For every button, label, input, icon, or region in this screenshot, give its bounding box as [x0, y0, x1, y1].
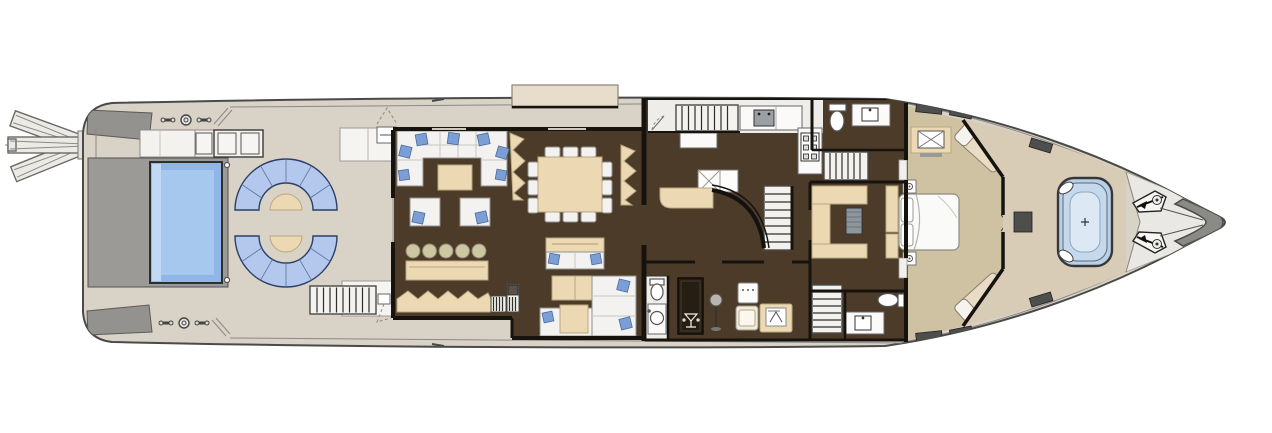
aft-pool-step — [152, 164, 161, 281]
sofa-pillow — [495, 169, 507, 181]
dining-chair — [545, 147, 560, 157]
island-dresser — [846, 208, 862, 234]
corner-counter — [660, 188, 713, 208]
yacht-deck-plan — [0, 0, 1272, 433]
pool-fitting-bottom — [225, 278, 230, 283]
sofa-pillow — [542, 311, 554, 323]
cleat-icon — [195, 321, 209, 325]
sofa-pillow — [398, 169, 409, 180]
dining-chair — [581, 212, 596, 222]
deck-plan-canvas — [0, 0, 1272, 433]
dining-chair — [602, 198, 612, 213]
sofa-pillow — [548, 253, 560, 265]
toilet-icon — [830, 111, 844, 131]
media-coffee-table — [552, 276, 575, 300]
wardrobe-column — [886, 234, 898, 258]
aft-pool-water — [158, 170, 214, 275]
stairs-forward-port — [824, 152, 868, 180]
wardrobe-column — [886, 186, 898, 232]
dining-chair — [528, 198, 538, 213]
toilet-tank — [829, 104, 846, 111]
cleat-icon — [161, 118, 175, 122]
coffee-table — [438, 165, 472, 190]
bar-counter — [406, 261, 488, 280]
dining-area — [528, 147, 612, 222]
bar-stool — [456, 244, 470, 258]
wall-panel — [738, 283, 758, 303]
day-head — [646, 276, 668, 340]
bow-jacuzzi — [1057, 178, 1112, 266]
dining-chair — [563, 212, 578, 222]
deck-hatch — [1014, 212, 1032, 232]
winch-icon — [179, 318, 189, 328]
dining-chair — [528, 180, 538, 195]
sofa-pillow — [619, 317, 632, 330]
sofa-pillow — [415, 133, 428, 146]
cleat-icon — [197, 118, 211, 122]
wardrobe-counter — [812, 204, 830, 244]
dining-chair — [581, 147, 596, 157]
closet-sliver — [899, 258, 907, 278]
sofa-pillow — [447, 132, 459, 144]
bar-stool — [423, 244, 437, 258]
faucet-icon — [862, 317, 865, 320]
tv-cabinet — [911, 127, 951, 157]
cooktop-icon — [801, 133, 819, 161]
dining-chair — [602, 180, 612, 195]
wardrobe-counter — [812, 244, 867, 258]
desk-chair — [736, 306, 758, 330]
faucet-icon — [869, 109, 872, 112]
writing-desk — [760, 304, 792, 332]
ottoman — [560, 305, 588, 333]
bar-stool — [406, 244, 420, 258]
faucet-icon — [647, 309, 651, 313]
armchair — [410, 198, 440, 226]
sofa-pillow — [477, 133, 490, 146]
aft-lockers — [140, 130, 263, 157]
dining-chair — [563, 147, 578, 157]
armchair — [460, 198, 490, 226]
toilet-icon — [878, 294, 898, 307]
toilet-tank — [898, 294, 904, 307]
sofa-pillow — [496, 146, 510, 160]
dining-table — [538, 157, 602, 212]
bar-cabinet — [678, 278, 703, 334]
cleat-icon — [159, 321, 173, 325]
superstructure-overhang — [512, 85, 618, 108]
salon-bar — [406, 244, 488, 280]
winch-icon — [181, 115, 191, 125]
sofa-console — [546, 238, 604, 252]
sofa-pillow — [617, 279, 630, 292]
dining-chair — [602, 162, 612, 177]
wardrobe-counter — [812, 186, 867, 204]
closet-sliver — [899, 160, 907, 180]
dining-chair — [545, 212, 560, 222]
sofa-pillow — [399, 145, 412, 158]
sofa-pillow — [590, 253, 602, 265]
galley-sink-icon — [754, 110, 774, 126]
bar-stool — [439, 244, 453, 258]
round-sink-icon — [651, 312, 664, 325]
deck-console — [378, 294, 390, 304]
dining-chair — [528, 162, 538, 177]
toilet-icon — [651, 284, 663, 300]
slatted-cabinet — [491, 296, 506, 312]
bar-stool — [472, 244, 486, 258]
passerelle-level-position — [8, 137, 86, 153]
galley-cabinet — [680, 133, 717, 148]
pool-fitting-top — [225, 163, 230, 168]
slatted-cabinet — [507, 284, 519, 312]
